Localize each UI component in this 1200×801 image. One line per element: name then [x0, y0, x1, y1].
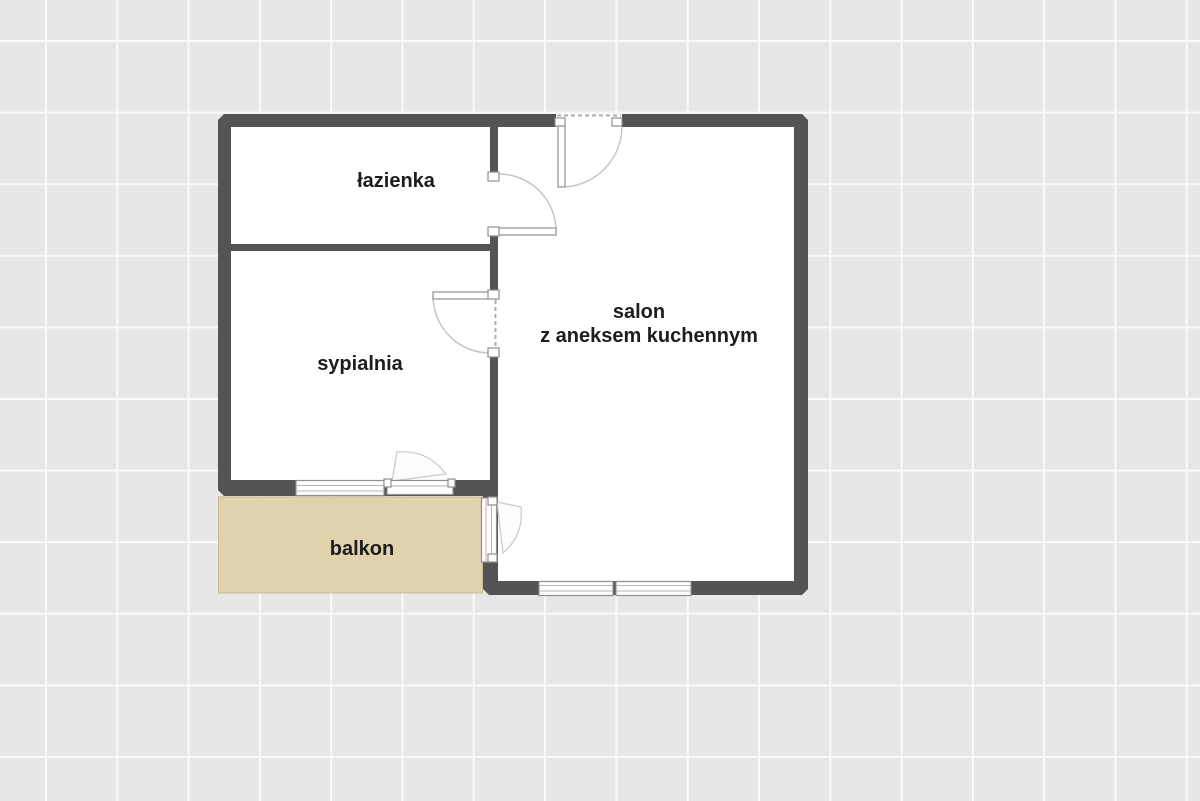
door-hinge — [612, 118, 622, 126]
room-label-sypialnia: sypialnia — [317, 353, 403, 375]
floor-plan-canvas: łazienka sypialnia salon z aneksem kuche… — [0, 0, 1200, 801]
door-leaf — [433, 292, 490, 299]
door-frame — [387, 481, 453, 495]
door-hinge — [488, 227, 499, 236]
salon-window-left — [539, 582, 613, 596]
room-label-salon-line1: salon — [613, 301, 665, 323]
door-hinge — [488, 348, 499, 357]
door-hinge — [488, 290, 499, 299]
door-hinge — [488, 172, 499, 181]
door-leaf — [498, 228, 556, 235]
wall-bathroom-bedroom — [231, 244, 498, 251]
wall-salon-lower-segment — [490, 353, 498, 480]
door-hinge — [555, 118, 565, 126]
door-leaf — [558, 126, 565, 187]
door-hinge — [448, 479, 455, 487]
wall-salon-middle-segment — [490, 233, 498, 295]
window-frame — [539, 582, 613, 596]
bedroom-window — [296, 481, 384, 496]
door-frame — [482, 498, 497, 562]
window-frame — [296, 481, 384, 496]
wall-salon-upper-segment — [490, 127, 498, 177]
floor-plan: łazienka sypialnia salon z aneksem kuche… — [0, 0, 1200, 801]
door-hinge — [488, 497, 497, 505]
window-frame — [616, 582, 691, 596]
room-label-balkon: balkon — [330, 538, 394, 560]
door-hinge — [384, 479, 391, 487]
room-label-salon-line2: z aneksem kuchennym — [540, 325, 758, 347]
room-label-lazienka: łazienka — [357, 170, 436, 192]
door-hinge — [488, 554, 497, 562]
salon-window-right — [616, 582, 691, 596]
